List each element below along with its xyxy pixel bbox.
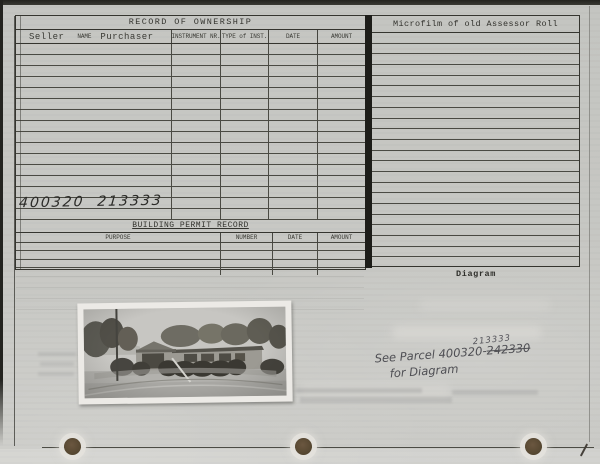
ownership-header-row: Seller NAME Purchaser INSTRUMENT NR. TYP… (16, 30, 365, 44)
permit-rows (16, 243, 365, 275)
cell (16, 55, 172, 65)
bleed-through-text (300, 397, 452, 403)
handwritten-parcel-numbers: 400320 213333 (18, 193, 163, 212)
cell (172, 66, 221, 76)
cell (318, 143, 365, 153)
cell (16, 77, 172, 87)
cell (318, 187, 365, 197)
card-bottom-edge-line (42, 447, 594, 448)
cell (172, 165, 221, 175)
cell (16, 110, 172, 120)
cell (221, 77, 269, 87)
cell (269, 88, 318, 98)
microfilm-empty-row (372, 86, 579, 97)
eraser-smudge (392, 326, 542, 339)
permit-empty-row (16, 243, 365, 251)
purpose-column-header: PURPOSE (16, 233, 221, 242)
permit-amount-column-header: AMOUNT (318, 233, 365, 242)
cell (172, 44, 221, 54)
cell (16, 121, 172, 131)
scan-edge-left (0, 0, 3, 446)
cell (273, 243, 318, 250)
name-label: NAME (77, 33, 91, 40)
ownership-empty-row (16, 110, 365, 121)
cell (221, 176, 269, 186)
cell (221, 154, 269, 164)
cell (269, 55, 318, 65)
ownership-empty-row (16, 121, 365, 132)
cell (318, 66, 365, 76)
cell (172, 176, 221, 186)
cell (172, 77, 221, 87)
cell (318, 55, 365, 65)
cell (16, 88, 172, 98)
punch-hole-right (525, 438, 542, 455)
microfilm-panel: Microfilm of old Assessor Roll (372, 15, 580, 267)
microfilm-empty-row (372, 193, 579, 204)
cell (16, 251, 221, 258)
microfilm-empty-row (372, 119, 579, 130)
cell (16, 268, 221, 275)
cell (269, 99, 318, 109)
ownership-empty-row (16, 176, 365, 187)
cell (318, 154, 365, 164)
name-column-header: Seller NAME Purchaser (16, 30, 172, 43)
punch-hole-center (295, 438, 312, 455)
cell (221, 99, 269, 109)
microfilm-empty-row (372, 54, 579, 65)
permit-date-column-header: DATE (273, 233, 318, 242)
bleed-through-text (40, 362, 74, 366)
microfilm-empty-row (372, 97, 579, 108)
cell (318, 77, 365, 87)
cell (221, 165, 269, 175)
cell (318, 165, 365, 175)
cell (269, 44, 318, 54)
cell (221, 55, 269, 65)
bleed-through-text (38, 352, 76, 356)
cell (269, 187, 318, 197)
type-column-header: TYPE of INST. (221, 30, 269, 43)
inner-left-rule (20, 16, 21, 269)
microfilm-empty-row (372, 108, 579, 119)
microfilm-empty-row (372, 247, 579, 258)
cell (221, 66, 269, 76)
record-of-ownership-table: RECORD OF OWNERSHIP Seller NAME Purchase… (15, 15, 366, 270)
cell (318, 110, 365, 120)
microfilm-empty-row (372, 215, 579, 226)
cell (221, 198, 269, 208)
cell (172, 209, 221, 219)
cell (269, 143, 318, 153)
cell (318, 198, 365, 208)
microfilm-empty-row (372, 44, 579, 55)
section-divider-bar (365, 15, 372, 268)
seller-label: Seller (29, 32, 64, 42)
microfilm-rows (372, 33, 579, 267)
cell (269, 165, 318, 175)
scanned-assessor-card: RECORD OF OWNERSHIP Seller NAME Purchase… (0, 0, 600, 464)
cell (16, 66, 172, 76)
microfilm-empty-row (372, 76, 579, 87)
cell (172, 154, 221, 164)
purchaser-label: Purchaser (100, 32, 153, 42)
cell (172, 121, 221, 131)
microfilm-empty-row (372, 172, 579, 183)
number-column-header: NUMBER (221, 233, 273, 242)
cell (221, 209, 269, 219)
ownership-empty-row (16, 77, 365, 88)
card-crease-line (589, 6, 590, 442)
permit-empty-row (16, 260, 365, 268)
cell (16, 99, 172, 109)
cell (269, 77, 318, 87)
cell (16, 154, 172, 164)
instrument-column-header: INSTRUMENT NR. (172, 30, 221, 43)
permit-header-row: PURPOSE NUMBER DATE AMOUNT (16, 233, 365, 243)
cell (172, 88, 221, 98)
microfilm-empty-row (372, 257, 579, 267)
microfilm-empty-row (372, 204, 579, 215)
cell (269, 110, 318, 120)
microfilm-empty-row (372, 236, 579, 247)
cell (221, 121, 269, 131)
cell (221, 268, 273, 275)
cell (269, 121, 318, 131)
cell (318, 176, 365, 186)
ownership-title: RECORD OF OWNERSHIP (16, 16, 365, 30)
cell (172, 55, 221, 65)
ownership-empty-row (16, 88, 365, 99)
handwritten-note: See Parcel 400320-242330213333 for Diagr… (374, 338, 561, 383)
cell (318, 132, 365, 142)
cell (269, 198, 318, 208)
cell (221, 251, 273, 258)
cell (172, 143, 221, 153)
cell (16, 44, 172, 54)
cell (172, 110, 221, 120)
cell (221, 260, 273, 267)
cell (273, 251, 318, 258)
punch-hole-left (64, 438, 81, 455)
cell (269, 132, 318, 142)
microfilm-empty-row (372, 183, 579, 194)
microfilm-empty-row (372, 65, 579, 76)
cell (221, 187, 269, 197)
permit-empty-row (16, 268, 365, 275)
cell (16, 132, 172, 142)
amount-column-header: AMOUNT (318, 30, 365, 43)
cell (269, 66, 318, 76)
cell (172, 198, 221, 208)
cell (221, 143, 269, 153)
cell (273, 268, 318, 275)
ownership-empty-row (16, 132, 365, 143)
ownership-empty-row (16, 143, 365, 154)
cell (172, 187, 221, 197)
cell (318, 99, 365, 109)
cell (318, 121, 365, 131)
ownership-empty-row (16, 154, 365, 165)
cell (221, 88, 269, 98)
cell (221, 132, 269, 142)
cell (269, 176, 318, 186)
cell (221, 243, 273, 250)
cell (318, 260, 365, 267)
bleed-through-text (38, 372, 74, 376)
cell (16, 165, 172, 175)
cell (221, 44, 269, 54)
cell (318, 243, 365, 250)
microfilm-title: Microfilm of old Assessor Roll (372, 16, 579, 33)
ownership-empty-row (16, 99, 365, 110)
microfilm-empty-row (372, 225, 579, 236)
ownership-empty-row (16, 165, 365, 176)
eraser-smudge (420, 300, 550, 310)
microfilm-empty-row (372, 129, 579, 140)
cell (318, 209, 365, 219)
bleed-through-text (296, 388, 422, 393)
microfilm-empty-row (372, 161, 579, 172)
cell (318, 44, 365, 54)
ownership-empty-row (16, 55, 365, 66)
scan-edge-top (0, 0, 600, 5)
ownership-empty-row (16, 66, 365, 77)
cell (16, 243, 221, 250)
building-permit-title: BUILDING PERMIT RECORD (16, 220, 365, 233)
microfilm-empty-row (372, 33, 579, 44)
photo-vignette (83, 307, 286, 399)
permit-empty-row (16, 251, 365, 259)
cell (16, 143, 172, 153)
cell (269, 209, 318, 219)
cell (172, 99, 221, 109)
date-column-header: DATE (269, 30, 318, 43)
property-photo (77, 301, 292, 405)
cell (318, 268, 365, 275)
cell (221, 110, 269, 120)
house-photo-image (83, 307, 286, 399)
ownership-empty-row (16, 209, 365, 220)
cell (318, 251, 365, 258)
cell (172, 132, 221, 142)
bleed-through-text (452, 390, 538, 395)
microfilm-empty-row (372, 140, 579, 151)
diagram-label: Diagram (372, 269, 580, 279)
cell (273, 260, 318, 267)
cell (16, 176, 172, 186)
cell (16, 260, 221, 267)
microfilm-empty-row (372, 151, 579, 162)
cell (269, 154, 318, 164)
ownership-empty-row (16, 44, 365, 55)
cell (318, 88, 365, 98)
